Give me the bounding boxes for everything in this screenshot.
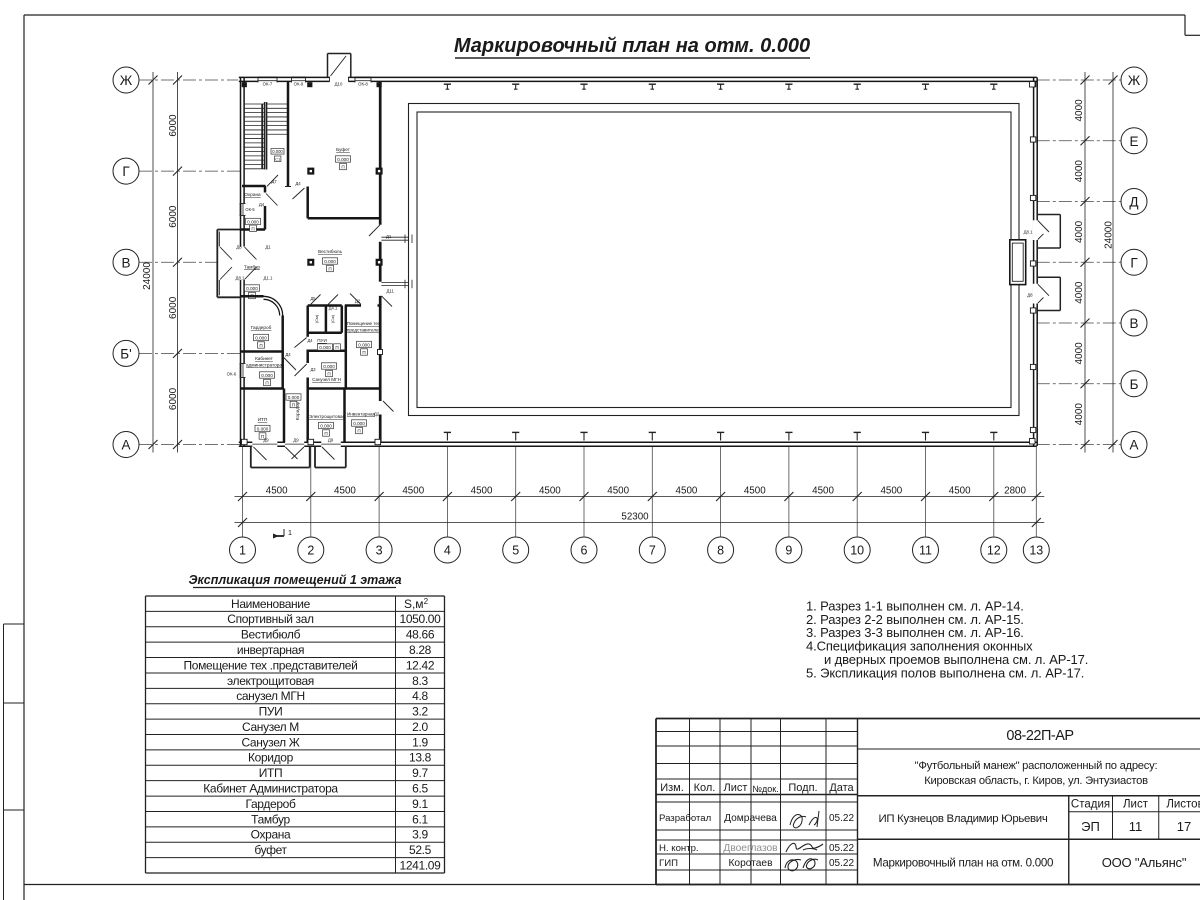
svg-text:"Футбольный манеж" расположенн: "Футбольный манеж" расположенный по адре… [915,760,1158,772]
svg-text:Санузел М: Санузел М [242,720,299,734]
svg-text:48.66: 48.66 [406,628,435,642]
svg-text:Тамбур: Тамбур [251,812,290,826]
svg-text:ГИП: ГИП [659,858,678,869]
svg-text:Стадия: Стадия [1071,799,1110,811]
svg-text:Маркировочный план на отм. 0.0: Маркировочный план на отм. 0.000 [873,857,1053,870]
svg-text:Коротаев: Коротаев [728,858,772,869]
svg-text:9.1: 9.1 [412,797,428,811]
svg-text:Разработал: Разработал [659,813,711,824]
svg-text:6.5: 6.5 [412,781,428,795]
svg-text:Двоеглазов: Двоеглазов [723,843,777,854]
svg-text:11: 11 [1129,819,1143,834]
svg-text:12.42: 12.42 [406,658,435,672]
svg-text:Изм.: Изм. [660,782,684,794]
svg-text:1.9: 1.9 [412,735,428,749]
svg-text:Домрачева: Домрачева [724,813,777,824]
svg-text:ООО "Альянс": ООО "Альянс" [1102,855,1187,870]
svg-text:08-22П-АР: 08-22П-АР [1006,728,1073,744]
svg-text:8.28: 8.28 [409,643,432,657]
svg-text:Охрана: Охрана [251,828,291,842]
svg-text:Коридор: Коридор [248,751,294,765]
svg-text:Экспликация помещений 1 этажа: Экспликация помещений 1 этажа [188,573,401,587]
svg-text:05.22: 05.22 [829,813,854,824]
svg-text:Лист: Лист [1123,799,1149,811]
svg-text:2.0: 2.0 [412,720,428,734]
svg-text:17: 17 [1177,819,1191,834]
svg-text:ИТП: ИТП [259,766,283,780]
svg-text:ЭП: ЭП [1081,819,1100,834]
svg-text:Санузел Ж: Санузел Ж [241,735,299,749]
svg-text:1050.00: 1050.00 [400,612,442,626]
svg-text:электрощитовая: электрощитовая [227,674,314,688]
svg-text:52.5: 52.5 [409,843,432,857]
svg-text:05.22: 05.22 [829,843,854,854]
svg-text:буфет: буфет [254,843,287,857]
svg-text:Дата: Дата [829,782,854,794]
svg-text:Помещение тех .представителей: Помещение тех .представителей [184,658,358,672]
svg-text:Листов: Листов [1166,799,1200,811]
svg-text:5. Экспликация полов выполнена: 5. Экспликация полов выполнена см. л. АР… [806,665,1084,680]
svg-text:8.3: 8.3 [412,674,428,688]
svg-text:санузел МГН: санузел МГН [236,689,305,703]
svg-text:Кол.: Кол. [694,782,716,794]
svg-text:Лист: Лист [724,782,748,794]
svg-text:инвертарная: инвертарная [237,643,304,657]
svg-text:Подп.: Подп. [788,782,817,794]
svg-text:Гардероб: Гардероб [246,797,296,811]
svg-text:Наименование: Наименование [231,597,311,611]
svg-text:05.22: 05.22 [829,858,854,869]
svg-text:ПУИ: ПУИ [259,705,283,719]
svg-text:№док.: №док. [752,784,778,794]
svg-text:3.9: 3.9 [412,828,428,842]
svg-text:Кировская область, г. Киров, у: Кировская область, г. Киров, ул. Энтузиа… [924,775,1148,787]
svg-text:Кабинет Администратора: Кабинет Администратора [203,781,338,795]
svg-text:Спортивный зал: Спортивный зал [227,612,314,626]
svg-text:Вестибюлб: Вестибюлб [241,628,301,642]
svg-text:Н. контр.: Н. контр. [659,843,699,854]
svg-text:13.8: 13.8 [409,751,432,765]
svg-text:1241.09: 1241.09 [400,858,442,872]
svg-text:4.8: 4.8 [412,689,428,703]
svg-text:6.1: 6.1 [412,812,428,826]
svg-text:ИП Кузнецов Владимир Юрьевич: ИП Кузнецов Владимир Юрьевич [878,813,1047,825]
svg-text:9.7: 9.7 [412,766,428,780]
svg-text:S,м2: S,м2 [404,597,429,611]
svg-text:3.2: 3.2 [412,705,428,719]
